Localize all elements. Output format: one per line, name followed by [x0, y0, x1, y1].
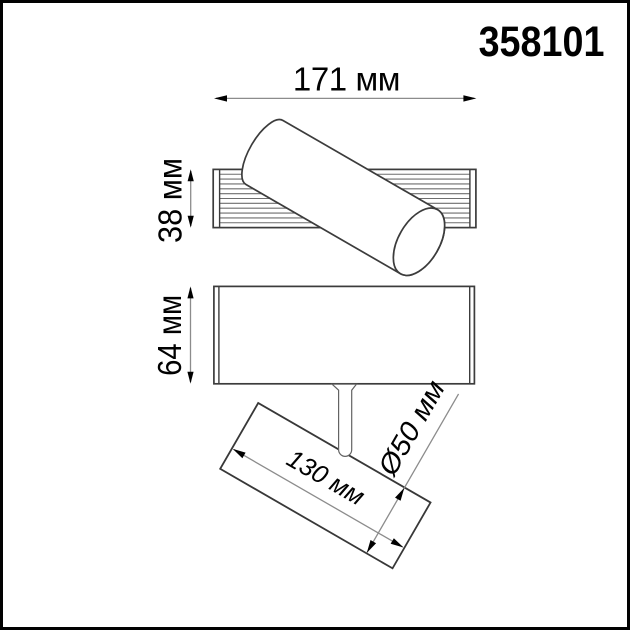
- svg-text:171 мм: 171 мм: [293, 60, 400, 97]
- svg-text:64 мм: 64 мм: [151, 295, 188, 376]
- svg-text:38 мм: 38 мм: [151, 158, 188, 243]
- svg-text:358101: 358101: [479, 17, 605, 66]
